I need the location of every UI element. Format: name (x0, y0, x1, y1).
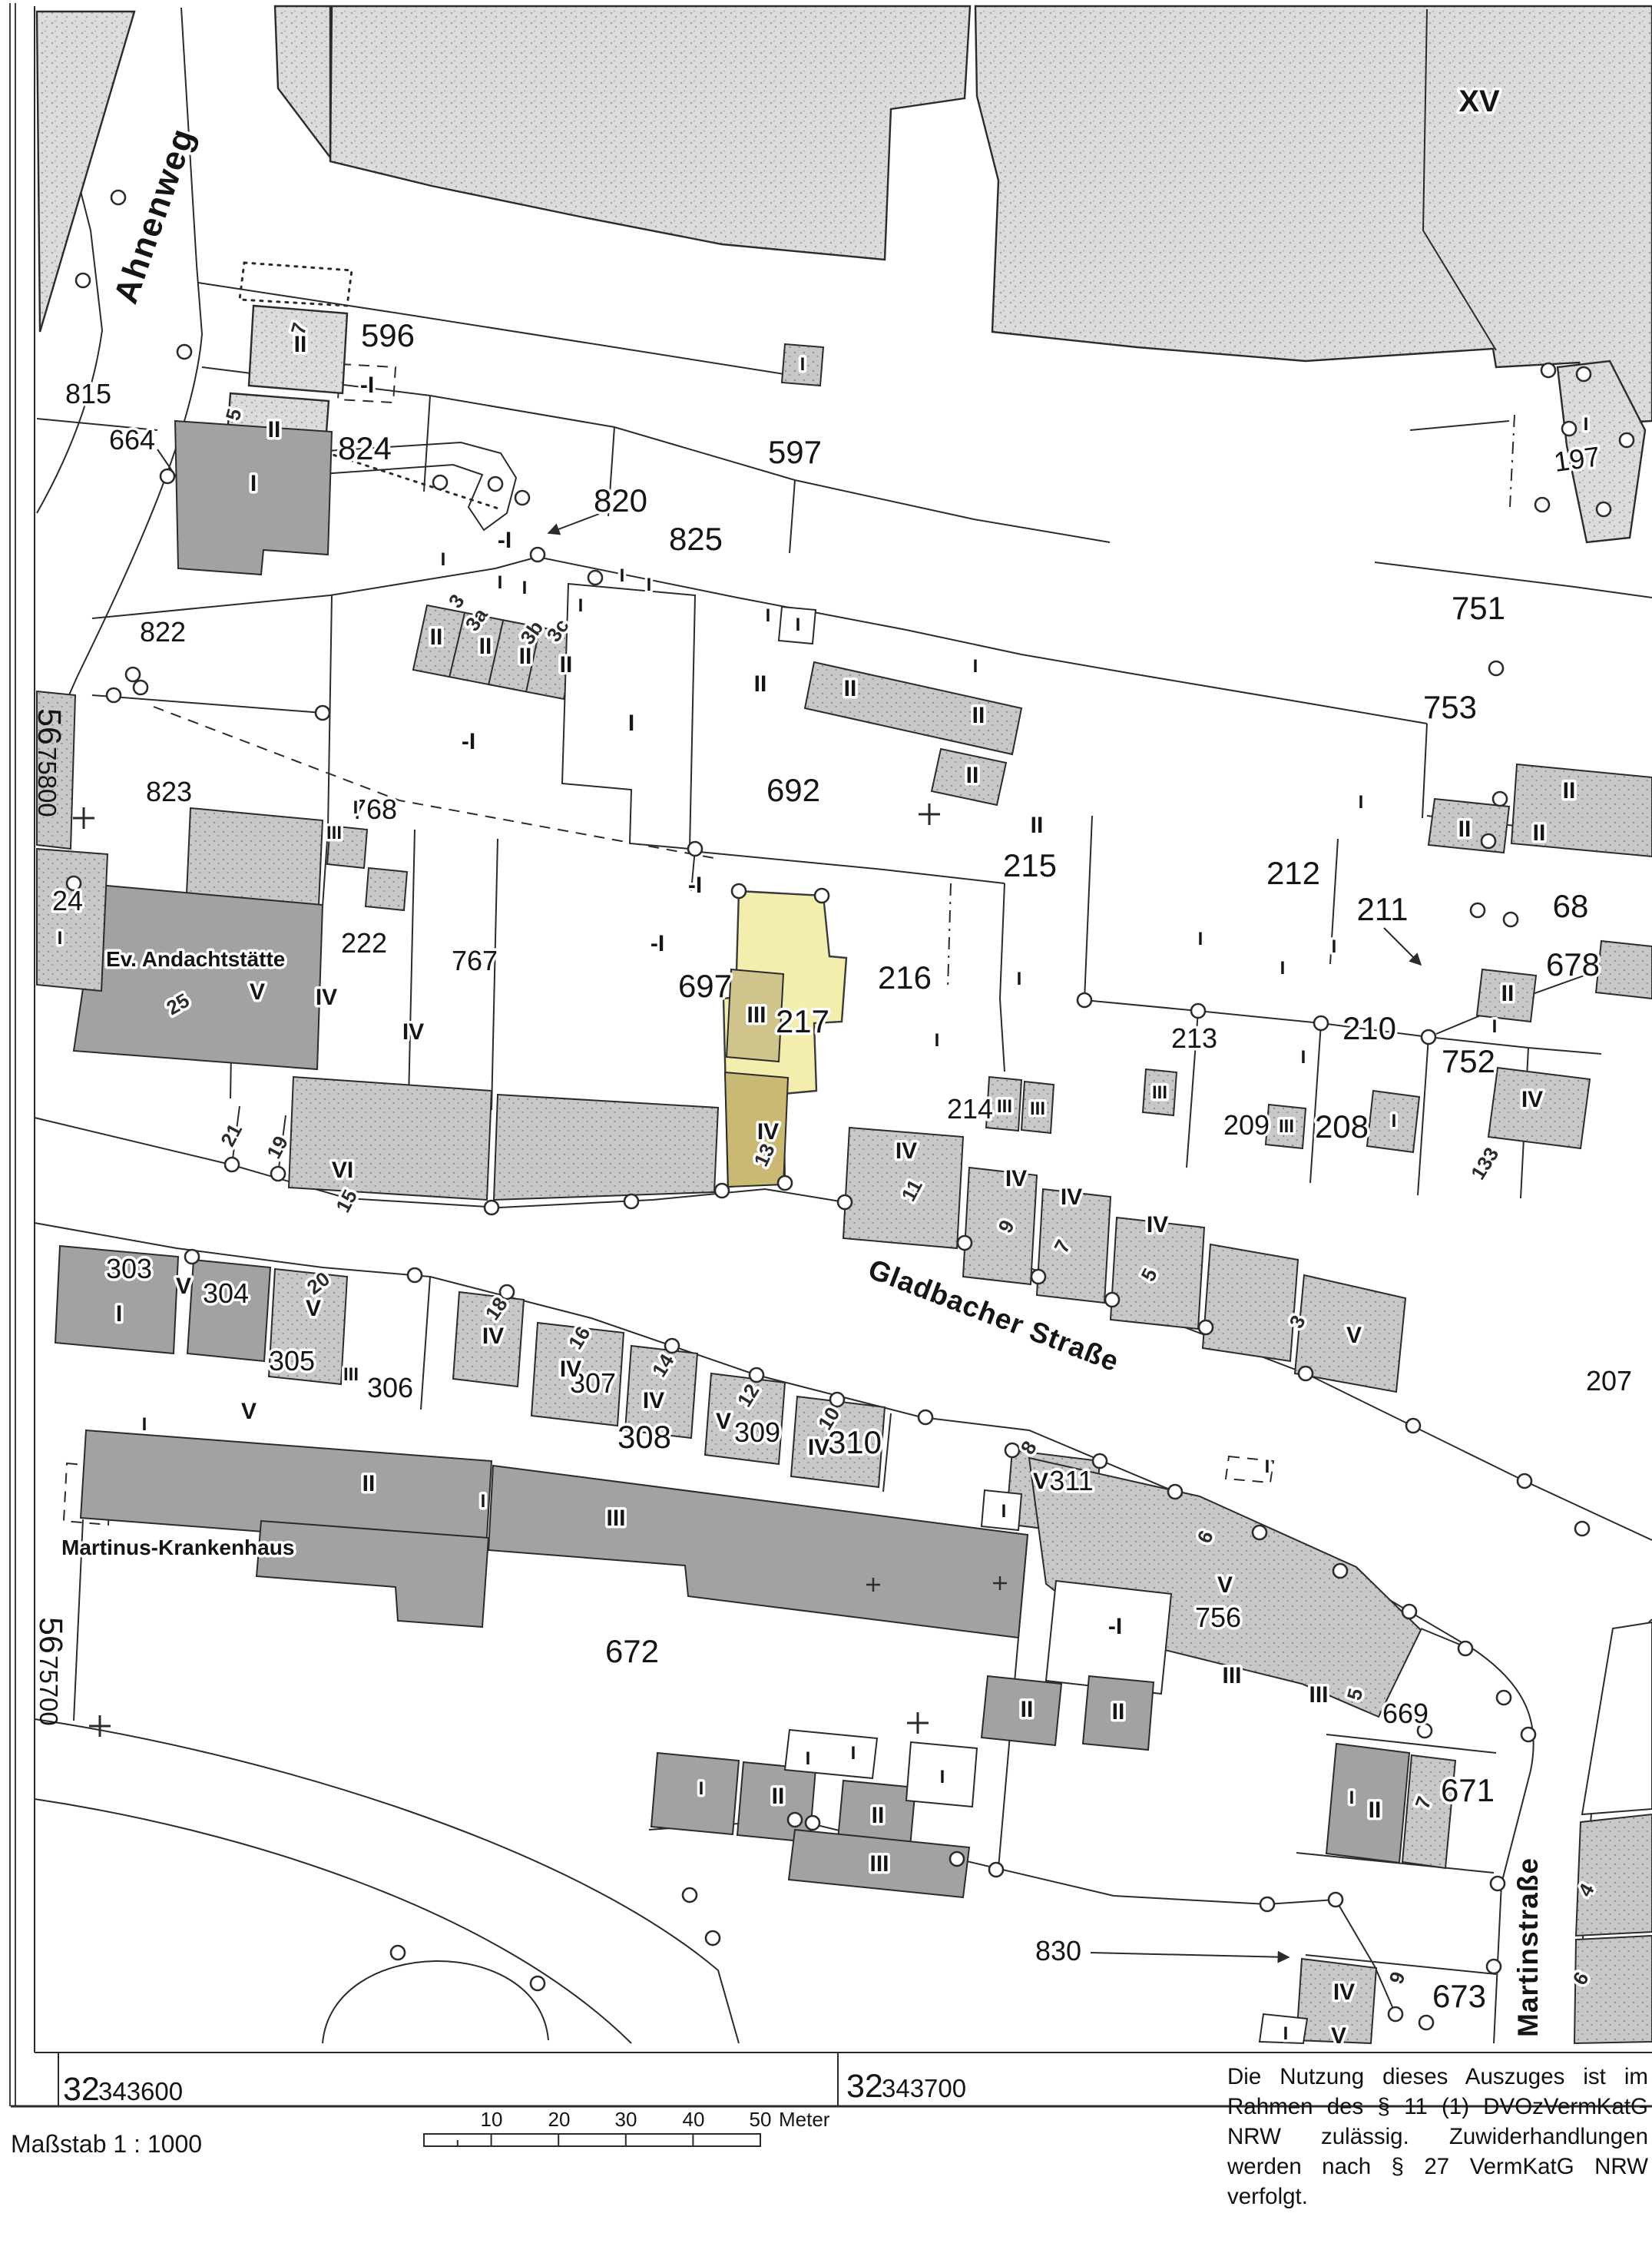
storey-label: I (441, 549, 446, 570)
storey-label: V (716, 1409, 731, 1434)
boundary-point (433, 475, 447, 489)
storey-label: I (1283, 2023, 1289, 2044)
legal-line: werden nach § 27 VermKatG NRW (1227, 2152, 1648, 2182)
storey-label: II (430, 625, 443, 650)
building (1203, 1244, 1298, 1361)
boundary-point (408, 1268, 422, 1282)
storey-label: I (699, 1778, 704, 1799)
storey-label: II (1031, 813, 1044, 838)
boundary-point (1482, 834, 1495, 848)
storey-label: I (1001, 1501, 1007, 1522)
coordinate-label-northing: 56 (32, 1617, 69, 1654)
building (975, 6, 1652, 425)
boundary-point (1541, 363, 1555, 377)
storey-label: IV (757, 1119, 779, 1145)
pointer-line (1384, 928, 1421, 965)
storey-label: I (142, 1414, 147, 1435)
boundary-point (688, 842, 702, 856)
building-hospital (488, 1466, 1028, 1638)
storey-label: -I (651, 931, 664, 956)
legal-notice: Die Nutzung dieses Auszuges ist im Rahme… (1227, 2062, 1648, 2212)
coordinate-label-northing: 56 (31, 708, 68, 745)
boundary-point (391, 1946, 405, 1960)
storey-label: IV (1061, 1184, 1082, 1210)
storey-label: II (519, 644, 532, 669)
building (289, 1077, 492, 1200)
storey-label: I (58, 928, 63, 949)
storey-label: I (1349, 1787, 1355, 1808)
storey-label: I (353, 797, 359, 818)
poi-label-krankenhaus: Martinus-Krankenhaus (61, 1536, 294, 1559)
boundary-point (950, 1852, 964, 1866)
storey-label: II (844, 676, 857, 701)
storey-label: I (250, 471, 257, 496)
boundary-point (588, 571, 602, 585)
house-number: 21 (216, 1120, 247, 1151)
storey-label: II (363, 1471, 376, 1496)
boundary-point (161, 469, 174, 483)
parcel-number: 752 (1442, 1043, 1495, 1079)
storey-label: IV (1521, 1087, 1543, 1112)
storey-label: IV (402, 1019, 424, 1045)
boundary-point (1260, 1897, 1274, 1911)
boundary-point (1577, 367, 1591, 381)
boundary-point (815, 889, 829, 903)
building (785, 1730, 877, 1778)
parcel-number: 308 (617, 1419, 671, 1455)
boundary-point (531, 1976, 545, 1990)
storey-label: I (851, 1743, 856, 1764)
coordinate-label-northing: 75700 (35, 1655, 63, 1726)
parcel-number: 751 (1452, 590, 1505, 626)
building (330, 6, 970, 260)
scale-unit-label: Meter (779, 2108, 830, 2131)
boundary-point (1518, 1474, 1531, 1488)
parcel-number: 211 (1357, 891, 1409, 927)
storey-label: II (754, 671, 767, 697)
storey-label: II (972, 703, 985, 728)
boundary-point (271, 1167, 285, 1181)
boundary-line (1000, 883, 1005, 1072)
parcel-number: 673 (1432, 1978, 1486, 2014)
storey-label: V (250, 979, 265, 1005)
storey-label: -I (688, 873, 702, 898)
boundary-point (1078, 993, 1091, 1007)
storey-label: -I (462, 729, 475, 754)
storey-label: I (578, 595, 584, 616)
street-label-martinstrasse: Martinstraße (1512, 1857, 1544, 2037)
parcel-number: 309 (734, 1416, 780, 1448)
dashdot-boundary (1510, 415, 1515, 507)
boundary-point (1031, 1270, 1045, 1284)
boundary-point (134, 681, 147, 694)
cadastral-map-page: Ahnenweg Gladbacher Straße Martinstraße … (0, 0, 1652, 2243)
building (37, 849, 108, 991)
parcel-number: 815 (65, 378, 111, 409)
boundary-point (485, 1201, 498, 1214)
boundary-point (989, 1863, 1003, 1877)
parcel-number: 215 (1003, 847, 1057, 883)
storey-label: I (498, 572, 503, 593)
legal-line: NRW zulässig. Zuwiderhandlungen (1227, 2122, 1648, 2152)
boundary-point (778, 1176, 792, 1190)
boundary-point (185, 1250, 199, 1264)
boundary-point (1389, 2007, 1402, 2021)
boundary-line (1410, 421, 1509, 430)
storey-label: I (1280, 958, 1286, 979)
storey-label: III (1222, 1663, 1241, 1688)
storey-label: V (1033, 1469, 1048, 1494)
parcel-number: 306 (367, 1372, 413, 1403)
scale-tick-label: 40 (683, 2108, 705, 2131)
storey-label: I (647, 575, 652, 595)
boundary-point (515, 491, 529, 505)
storey-label: IV (1333, 1980, 1355, 2005)
storey-label: III (869, 1851, 889, 1877)
storey-label: I (481, 1491, 486, 1512)
building (175, 421, 332, 575)
storey-label: IV (482, 1324, 504, 1349)
boundary-point (1329, 1893, 1342, 1907)
boundary-line (92, 695, 323, 713)
boundary-point (830, 1393, 844, 1406)
boundary-point (1497, 1691, 1511, 1705)
street-label-ahnenweg: Ahnenweg (107, 123, 202, 308)
dotted-boundary (240, 263, 352, 306)
boundary-point (1314, 1016, 1328, 1030)
storey-label: IV (316, 985, 337, 1010)
parcel-number: 669 (1382, 1698, 1429, 1729)
building (187, 808, 323, 905)
poi-label-andachtstaette: Ev. Andachtstätte (106, 947, 285, 971)
boundary-point (1491, 1877, 1505, 1890)
storey-label: I (1198, 929, 1203, 949)
scale-tick-label: 10 (481, 2108, 503, 2131)
boundary-line (409, 830, 415, 1100)
parcel-number: 213 (1171, 1022, 1217, 1054)
storey-label: -I (1108, 1614, 1122, 1639)
building (1596, 941, 1652, 999)
boundary-point (500, 1285, 514, 1299)
boundary-point (1535, 498, 1549, 512)
parcel-number: 830 (1035, 1935, 1081, 1966)
boundary-point (1471, 903, 1485, 917)
building (494, 1095, 718, 1200)
storey-label: I (806, 1748, 811, 1769)
boundary-point (665, 1339, 679, 1353)
parcel-number: 678 (1546, 946, 1600, 982)
storey-label: I (1332, 936, 1337, 957)
coordinate-label-easting: 343700 (882, 2074, 966, 2102)
storey-label: I (766, 605, 771, 626)
storey-label: IV (808, 1435, 829, 1460)
coordinate-label-easting: 32 (63, 2071, 100, 2108)
storey-label: V (176, 1274, 191, 1299)
boundary-point (111, 191, 125, 204)
parcel-number: 672 (605, 1633, 659, 1669)
boundary-line (92, 557, 1427, 724)
storey-label: II (772, 1784, 785, 1809)
parcel-number: 597 (768, 434, 822, 470)
storey-label: IV (896, 1138, 917, 1164)
storey-label: II (1458, 817, 1472, 842)
pointer-line-830 (1091, 1953, 1289, 1957)
storey-label: III (343, 1364, 359, 1385)
boundary-point (1597, 502, 1611, 516)
storey-label: V (306, 1296, 321, 1321)
storey-label: I (1017, 969, 1022, 989)
boundary-point (531, 548, 545, 562)
boundary-point (788, 1813, 802, 1827)
parcel-number: 24 (52, 885, 83, 916)
storey-label: I (1265, 1456, 1270, 1477)
boundary-point (919, 1410, 932, 1424)
parcel-number: 216 (878, 959, 932, 996)
parcel-number: 664 (109, 424, 155, 456)
boundary-point (1105, 1293, 1119, 1307)
boundary-point (806, 1816, 819, 1830)
boundary-line (790, 480, 795, 553)
parcel-number: 823 (146, 776, 192, 807)
storey-label: IV (560, 1357, 581, 1382)
storey-label: II (966, 763, 979, 788)
building (1574, 1936, 1652, 2043)
boundary-point (624, 1194, 638, 1208)
grid-cross (907, 1712, 929, 1734)
storey-label: I (796, 615, 801, 635)
storey-label: V (1217, 1572, 1233, 1598)
storey-label: II (560, 652, 573, 678)
storey-label: III (1309, 1682, 1328, 1708)
storey-label: II (1021, 1697, 1034, 1722)
boundary-point (1191, 1004, 1205, 1018)
coordinate-label-easting: 32 (846, 2068, 883, 2105)
path-curve (323, 1961, 548, 2043)
storey-label: IV (1147, 1212, 1168, 1237)
boundary-point (1422, 1030, 1435, 1044)
boundary-point (1493, 792, 1507, 806)
parcel-number: 825 (669, 521, 723, 557)
storey-label: II (1533, 820, 1546, 846)
scale-tick-label: 20 (548, 2108, 571, 2131)
boundary-point (1620, 433, 1634, 447)
boundary-point (1521, 1728, 1535, 1741)
parcel-number: 311 (1049, 1465, 1093, 1496)
parcel-number: 692 (766, 772, 820, 808)
boundary-point (225, 1158, 239, 1171)
storey-label: III (997, 1096, 1012, 1117)
boundary-point (1419, 2016, 1433, 2029)
parcel-number: 756 (1195, 1602, 1241, 1633)
buildings-layer (37, 6, 1652, 2043)
grid-cross (89, 1715, 111, 1737)
storey-label: I (973, 656, 978, 677)
parcel-number: 824 (338, 430, 392, 466)
house-number: 133 (1466, 1143, 1503, 1184)
storey-label: I (1492, 1016, 1498, 1037)
parcel-number: 671 (1441, 1772, 1495, 1808)
building (187, 1260, 270, 1361)
house-number: 19 (262, 1132, 293, 1163)
boundary-point (1406, 1419, 1420, 1433)
boundary-line (1418, 1037, 1429, 1195)
boundary-point (177, 345, 191, 359)
boundary-point (107, 688, 121, 702)
storey-label: -I (498, 528, 511, 553)
parcel-number: 822 (140, 616, 186, 648)
parcel-number: 212 (1266, 855, 1320, 891)
storey-label-xv: XV (1458, 84, 1500, 118)
storey-label: I (935, 1030, 940, 1051)
building (275, 6, 330, 157)
storey-label: I (522, 578, 528, 598)
boundary-point (1199, 1320, 1213, 1334)
boundary-point (126, 668, 140, 681)
boundary-line (1084, 816, 1092, 1000)
storey-label: III (326, 823, 342, 843)
storey-label: II (1501, 981, 1515, 1006)
boundary-point (1562, 422, 1576, 436)
storey-label: V (241, 1399, 257, 1424)
parcel-outline (1582, 1622, 1652, 1814)
building (651, 1753, 739, 1834)
boundary-point (316, 706, 329, 720)
parcel-number: 68 (1553, 888, 1589, 924)
storey-label: IV (643, 1388, 664, 1413)
boundary-point (715, 1184, 729, 1198)
coordinate-label-northing: 75800 (33, 747, 61, 817)
storey-label: III (1279, 1116, 1294, 1137)
boundary-point (1253, 1526, 1266, 1539)
storey-label: I (628, 711, 634, 736)
parcel-number: 305 (269, 1345, 315, 1377)
parcel-number: 697 (678, 968, 732, 1004)
boundary-line (883, 1413, 891, 1492)
storey-label: I (1301, 1047, 1306, 1068)
path-curve (35, 1799, 631, 2043)
storey-label: III (1152, 1082, 1167, 1103)
boundary-point (1458, 1642, 1472, 1655)
path-curve (35, 1719, 739, 2043)
scale-bar (424, 2134, 760, 2146)
boundary-point (750, 1368, 763, 1382)
storey-label: II (479, 634, 492, 659)
boundary-point (706, 1931, 720, 1945)
legal-line: verfolgt. (1227, 2182, 1648, 2212)
storey-label: III (606, 1506, 625, 1531)
storey-label: I (1359, 792, 1364, 813)
boundary-point (958, 1236, 972, 1250)
boundary-line (691, 851, 1005, 883)
boundary-point (1504, 913, 1518, 926)
storey-label: I (116, 1301, 122, 1327)
building (1576, 1814, 1652, 1936)
storey-label: I (940, 1767, 945, 1787)
storey-label: II (268, 417, 281, 442)
legal-line: Die Nutzung dieses Auszuges ist im (1227, 2062, 1648, 2092)
grid-cross (73, 807, 94, 829)
dashdot-boundary (948, 883, 951, 989)
boundary-line (424, 396, 430, 492)
building (366, 868, 407, 910)
storey-label: III (747, 1002, 766, 1028)
boundary-point (1489, 661, 1503, 675)
boundary-point (1487, 1960, 1501, 1973)
storey-label: VI (332, 1158, 353, 1183)
storey-label: V (1346, 1323, 1362, 1348)
boundary-point (488, 477, 502, 491)
storey-label: I (620, 565, 625, 586)
parcel-number: 197 (1552, 440, 1602, 478)
parcel-number: 222 (341, 927, 387, 959)
parcel-number: 596 (361, 317, 415, 353)
legend: Maßstab 1 : 1000 10 20 30 40 50 Meter (11, 2108, 830, 2158)
storey-label: I (1584, 414, 1589, 435)
storey-label: II (872, 1803, 885, 1828)
boundary-point (1299, 1367, 1313, 1380)
boundary-point (1333, 1564, 1347, 1578)
legal-line: Rahmen des § 11 (1) DVOzVermKatG (1227, 2092, 1648, 2122)
parcel-number-217: 217 (776, 1003, 829, 1039)
boundary-point (1168, 1485, 1182, 1499)
storey-label: IV (1005, 1166, 1027, 1191)
parcel-number: 767 (452, 945, 498, 976)
boundary-point (1575, 1522, 1589, 1536)
boundary-point (732, 884, 746, 898)
parcel-number: 310 (828, 1424, 882, 1460)
boundary-point (838, 1195, 852, 1209)
house-number: 9 (1384, 1969, 1409, 1987)
parcel-number: 210 (1342, 1010, 1396, 1046)
storey-label: V (1331, 2023, 1346, 2049)
parcel-number: 820 (594, 482, 647, 519)
scale-tick-label: 30 (615, 2108, 637, 2131)
grid-cross (919, 803, 940, 825)
boundary-line (1375, 562, 1652, 598)
storey-label: -I (360, 373, 374, 398)
parcel-number: 753 (1423, 689, 1477, 725)
building (74, 885, 323, 1069)
boundary-point (1093, 1454, 1107, 1468)
boundary-line (1310, 1023, 1321, 1183)
storey-label: II (1563, 778, 1576, 803)
coordinate-label-easting: 343600 (98, 2077, 183, 2106)
parcel-number: 304 (203, 1277, 249, 1309)
boundary-point (683, 1888, 697, 1902)
building (805, 662, 1021, 754)
storey-label: III (1030, 1098, 1045, 1119)
parcel-number: 214 (947, 1093, 993, 1125)
parcel-number: 207 (1586, 1365, 1632, 1396)
boundary-point (76, 273, 90, 287)
scale-tick-label: 50 (750, 2108, 772, 2131)
parcel-number: 208 (1315, 1108, 1369, 1145)
boundary-line (421, 1277, 430, 1410)
parcel-number: 209 (1223, 1109, 1270, 1141)
boundary-point (1402, 1605, 1416, 1618)
cadastral-map: Ahnenweg Gladbacher Straße Martinstraße … (0, 0, 1652, 2243)
parcel-number: 303 (106, 1253, 152, 1284)
storey-label: II (1369, 1797, 1382, 1823)
storey-label: II (1112, 1699, 1125, 1724)
boundary-line (1422, 724, 1427, 818)
storey-label: I (1392, 1111, 1397, 1131)
storey-label: I (800, 354, 806, 375)
scale-text: Maßstab 1 : 1000 (11, 2130, 202, 2158)
